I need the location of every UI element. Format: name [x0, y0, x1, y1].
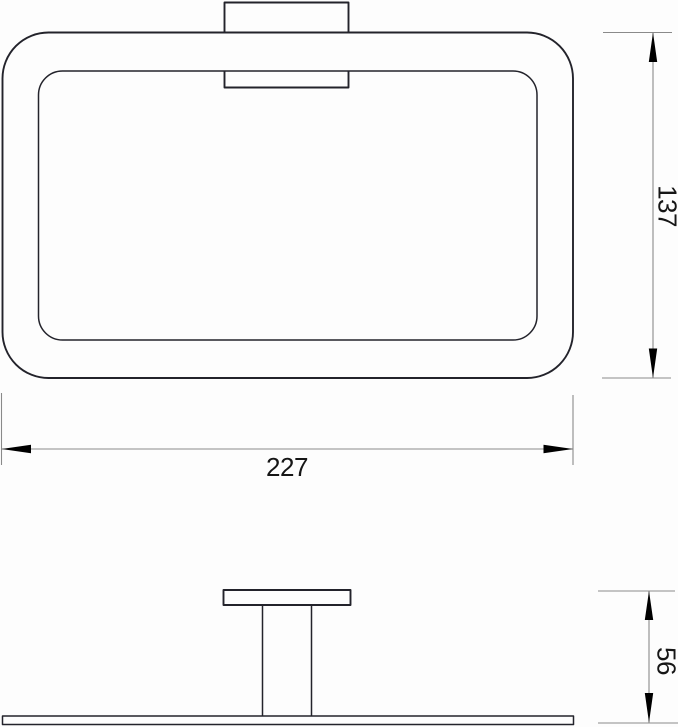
- technical-drawing-canvas: 227 137 56: [0, 0, 678, 727]
- technical-drawing-page: 227 137 56: [0, 0, 678, 727]
- height-dimension-value: 137: [652, 185, 678, 227]
- drawing-background: [0, 0, 678, 727]
- width-dimension-value: 227: [266, 452, 308, 482]
- depth-dimension-value: 56: [651, 647, 678, 675]
